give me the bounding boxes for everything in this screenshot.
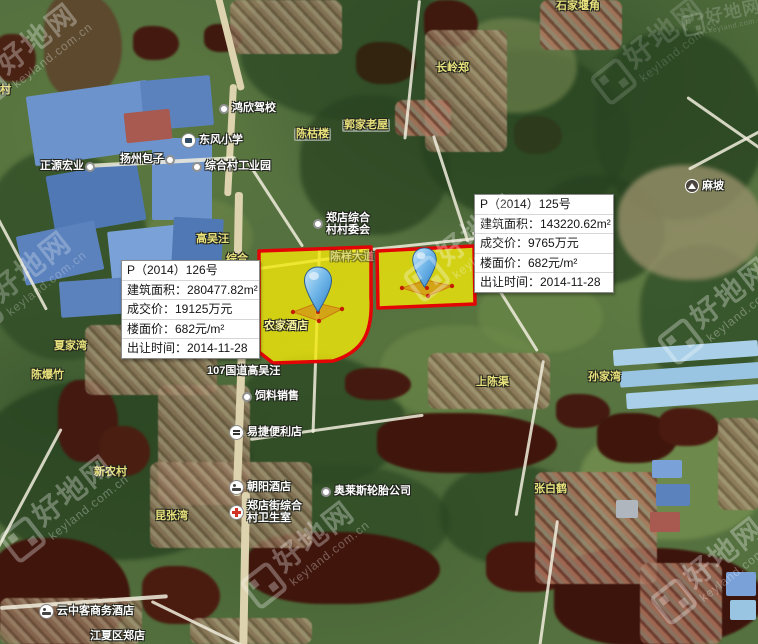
- transfer-date: 出让时间：2014-11-28: [475, 272, 613, 292]
- trail: [686, 96, 758, 156]
- roads-layer: [0, 0, 758, 644]
- map-pin-parcel-125[interactable]: [411, 247, 438, 289]
- parcel-id: P（2014）125号: [475, 195, 613, 214]
- parcel-id: P（2014）126号: [122, 261, 259, 280]
- map-pin-parcel-126[interactable]: [303, 266, 333, 314]
- trail: [246, 160, 304, 247]
- trail: [86, 156, 236, 168]
- trail: [0, 217, 48, 311]
- trail: [515, 360, 545, 516]
- trail: [0, 428, 63, 553]
- building-area: 建筑面积：280477.82m²: [122, 280, 259, 300]
- road: [224, 84, 237, 196]
- trail: [151, 600, 253, 644]
- floor-price: 楼面价：682元/m²: [475, 253, 613, 273]
- road: [214, 0, 245, 91]
- floor-price: 楼面价：682元/m²: [122, 319, 259, 339]
- trail: [403, 0, 421, 140]
- trail: [250, 414, 424, 441]
- parcel-info-window-126: P（2014）126号 建筑面积：280477.82m² 成交价：19125万元…: [121, 260, 260, 359]
- satellite-map[interactable]: 石家堰角长岭郑鸿欣驾校东风小学扬州包子正源宏业综合村工业园陈枯楼郭家老屋郑店综合…: [0, 0, 758, 644]
- trail: [0, 594, 168, 610]
- road: [233, 348, 246, 496]
- deal-price: 成交价：19125万元: [122, 299, 259, 319]
- deal-price: 成交价：9765万元: [475, 233, 613, 253]
- parcel-info-window-125: P（2014）125号 建筑面积：143220.62m² 成交价：9765万元 …: [474, 194, 614, 293]
- transfer-date: 出让时间：2014-11-28: [122, 338, 259, 358]
- building-area: 建筑面积：143220.62m²: [475, 214, 613, 234]
- road: [239, 492, 250, 644]
- trail: [538, 520, 559, 644]
- trail: [432, 135, 469, 242]
